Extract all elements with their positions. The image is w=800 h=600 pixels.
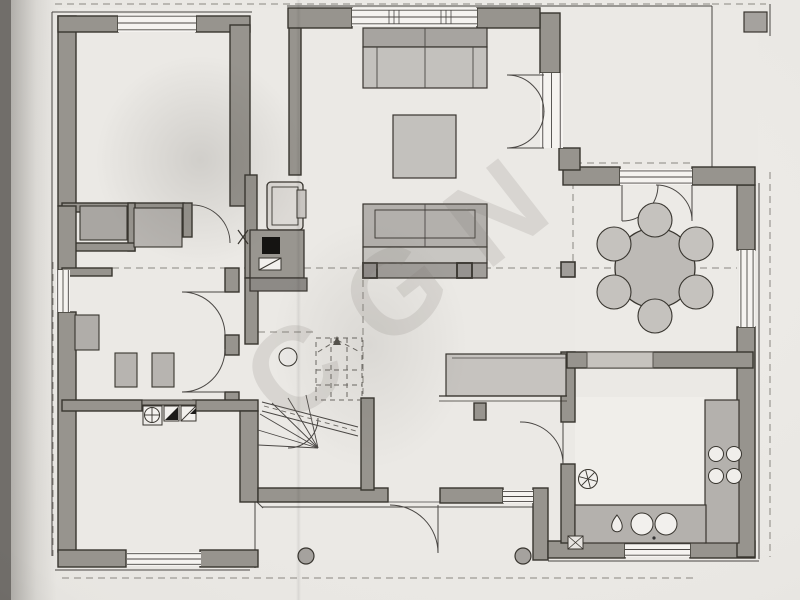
cooktop-burner [727, 447, 742, 462]
wall-left-lower [58, 312, 76, 552]
fireplace-firebox [262, 237, 280, 254]
cooktop-burner [709, 447, 724, 462]
floor-plan-drawing [0, 0, 800, 600]
wall-living-east [540, 13, 560, 73]
wall-living-north-west [288, 8, 352, 28]
bench-post-left [363, 263, 377, 278]
stair-newel [279, 348, 297, 366]
dining-chair [597, 227, 631, 261]
dining-chair [597, 275, 631, 309]
coffee-table [393, 115, 456, 178]
wall-hall-stub [474, 403, 486, 420]
wall-room2-east-b [225, 335, 239, 355]
dining-chair [638, 203, 672, 237]
room2-cabinet [75, 315, 99, 350]
free-column [561, 262, 575, 277]
wardrobe-b [134, 208, 182, 247]
wall-kitchen-sw [533, 488, 548, 560]
kitchen-floor [575, 397, 705, 505]
sideboard [446, 354, 566, 396]
stove-pipe [297, 190, 306, 218]
wall-left-upper [58, 16, 76, 206]
wall-living-west [289, 25, 301, 175]
scan-strip [0, 0, 11, 600]
wall-hall-west [183, 203, 192, 237]
wall-stair-west [240, 411, 258, 502]
wall-connector [559, 148, 580, 170]
sink-drain-dot [652, 536, 655, 539]
porch-column [515, 548, 531, 564]
scanned-floor-plan: CGN [0, 0, 800, 600]
wall-bottom-left-b [200, 550, 258, 567]
porch-column [298, 548, 314, 564]
bench-post-right [457, 263, 472, 278]
wall-bottom-left-a [58, 550, 126, 567]
wardrobe-a [80, 206, 127, 240]
room2-furniture-a [115, 353, 137, 387]
wall-top-left-a [58, 16, 118, 32]
dining-chair [638, 299, 672, 333]
fireplace-base [250, 278, 307, 291]
dining-chair [679, 227, 713, 261]
wall-right-upper [737, 185, 755, 250]
cooktop-burner [727, 469, 742, 484]
sofa2-front [363, 247, 487, 263]
sink-bowl-left [631, 513, 653, 535]
cooktop-burner [709, 469, 724, 484]
sink-bowl-right [655, 513, 677, 535]
wall-left-mid [58, 206, 76, 270]
dining-chair [679, 275, 713, 309]
wall-annex-north-east [692, 167, 755, 185]
wall-dining-kitchen-opening [587, 352, 653, 368]
wall-utility-north-a [62, 400, 142, 411]
terrace-column [744, 12, 767, 32]
wall-appliance-nook [142, 400, 196, 405]
wall-kitchen-hall-lower [561, 464, 575, 543]
wall-living-north-east [477, 8, 540, 28]
wall-stair-east [361, 398, 374, 490]
wall-entrance-east [440, 488, 503, 503]
wall-room2-east-a [225, 268, 239, 292]
wall-utility-north-b [193, 400, 258, 411]
room2-furniture-b [152, 353, 174, 387]
